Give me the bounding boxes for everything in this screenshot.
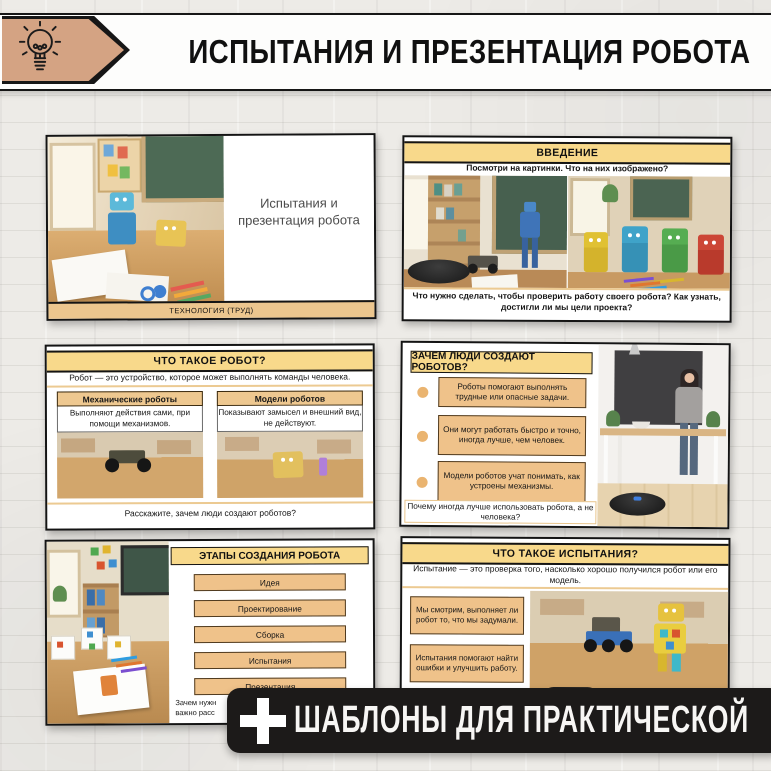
photo-robot-buggy bbox=[57, 432, 203, 499]
slide1-classroom-photo bbox=[48, 136, 225, 306]
cube-robot bbox=[273, 451, 304, 478]
bullet-dot bbox=[417, 431, 428, 442]
robot-vacuum bbox=[408, 259, 470, 283]
ribbon-label: ШАБЛОНЫ ДЛЯ ПРАКТИЧЕСКОЙ bbox=[294, 699, 749, 742]
slide-what-is-robot: ЧТО ТАКОЕ РОБОТ? Робот — это устройство,… bbox=[45, 343, 376, 530]
robot-humanoid-legs bbox=[522, 238, 528, 268]
table-legs bbox=[604, 435, 608, 483]
robot-yellow-head bbox=[658, 603, 684, 621]
templates-ribbon: ШАБЛОНЫ ДЛЯ ПРАКТИЧЕСКОЙ bbox=[227, 688, 771, 753]
column-header-mechanical: Механические роботы bbox=[57, 391, 203, 407]
window bbox=[50, 143, 96, 231]
slide-title-card: Испытания и презентация робота ТЕХНОЛОГИ… bbox=[46, 133, 377, 321]
chalkboard bbox=[121, 545, 170, 595]
slide-why-robots: ЗАЧЕМ ЛЮДИ СОЗДАЮТ РОБОТОВ? Роботы помог… bbox=[399, 341, 730, 530]
robot-humanoid-head bbox=[524, 202, 536, 212]
photo-robots-left bbox=[404, 175, 567, 288]
cube-stickers bbox=[57, 642, 63, 648]
notebook bbox=[471, 274, 518, 288]
step-box-idea: Идея bbox=[194, 573, 346, 591]
window bbox=[47, 550, 81, 618]
robot-yellow-body bbox=[654, 623, 686, 653]
presentation-title: Испытания и презентация робота bbox=[228, 195, 370, 230]
step-box-assembly: Сборка bbox=[194, 625, 346, 643]
question-box: Почему иногда лучше использовать робота,… bbox=[404, 500, 596, 525]
background-desks bbox=[540, 599, 584, 615]
slide-header: ЭТАПЫ СОЗДАНИЯ РОБОТА bbox=[171, 546, 369, 565]
robot-blue-body bbox=[108, 212, 136, 244]
definition-text: Робот — это устройство, которое может вы… bbox=[47, 371, 373, 382]
question-text: Что нужно сделать, чтобы проверить работ… bbox=[412, 290, 722, 313]
plant bbox=[606, 410, 620, 426]
slide-intro: ВВЕДЕНИЕ Посмотри на картинки. Что на ни… bbox=[402, 135, 733, 322]
books bbox=[434, 183, 442, 195]
bullet-dot bbox=[417, 387, 428, 398]
robot-body-panels bbox=[660, 629, 668, 637]
robot-blue bbox=[622, 226, 648, 272]
slide-header: ЧТО ТАКОЕ РОБОТ? bbox=[47, 349, 373, 372]
question-partial-text: Зачем нужн важно расс bbox=[175, 698, 216, 718]
test-box-2: Испытания помогают найти ошибки и улучши… bbox=[410, 644, 524, 683]
robot-yellow bbox=[584, 232, 608, 272]
robot-eyes bbox=[164, 226, 168, 230]
title-panel: Испытания и презентация робота bbox=[224, 135, 375, 304]
robot-eyes bbox=[589, 238, 593, 242]
question-line-2: важно расс bbox=[175, 708, 216, 718]
glue-stick bbox=[319, 458, 327, 476]
photo-kitchen bbox=[597, 344, 728, 527]
lightbulb-icon bbox=[16, 21, 64, 79]
bullet-box-1: Роботы помогают выполнять трудные или оп… bbox=[438, 377, 586, 408]
subject-footer: ТЕХНОЛОГИЯ (ТРУД) bbox=[48, 300, 374, 319]
robot-sketch bbox=[100, 675, 118, 697]
robot-eyes bbox=[664, 609, 668, 613]
test-box-1: Мы смотрим, выполняет ли робот то, что м… bbox=[410, 596, 524, 635]
robot-car-wheels bbox=[584, 639, 597, 652]
photo-workshop bbox=[47, 541, 170, 724]
table-top bbox=[600, 428, 726, 436]
chalkboard bbox=[142, 136, 225, 202]
robot-green bbox=[662, 228, 688, 272]
robot-eyes bbox=[628, 233, 632, 237]
bullet-box-3: Модели роботов учат понимать, как устрое… bbox=[437, 461, 585, 502]
chalkboard bbox=[630, 176, 692, 220]
robot-eyes bbox=[115, 197, 119, 201]
page-title: ИСПЫТАНИЯ И ПРЕЗЕНТАЦИЯ РОБОТА bbox=[188, 33, 716, 71]
folders bbox=[87, 590, 95, 606]
fruit-bowl bbox=[632, 422, 650, 429]
bullet-dot bbox=[417, 477, 428, 488]
woman-face bbox=[684, 373, 694, 383]
robot-yellow-legs bbox=[658, 653, 667, 671]
divider bbox=[47, 501, 373, 504]
slide-header: ЗАЧЕМ ЛЮДИ СОЗДАЮТ РОБОТОВ? bbox=[410, 351, 592, 374]
column-text-models: Показывают замысел и внешний вид, не дей… bbox=[217, 405, 363, 432]
question-line-1: Зачем нужн bbox=[175, 698, 216, 708]
buggy-wheels bbox=[105, 458, 119, 472]
background-desks bbox=[61, 438, 95, 452]
step-box-design: Проектирование bbox=[194, 599, 346, 617]
robot-blue-head bbox=[110, 192, 134, 210]
slide-header: ЧТО ТАКОЕ ИСПЫТАНИЯ? bbox=[402, 542, 728, 566]
photo-robot-model bbox=[217, 431, 363, 498]
robot-yellow bbox=[155, 220, 186, 247]
divider bbox=[402, 586, 728, 590]
definition-text: Испытание — это проверка того, насколько… bbox=[408, 563, 722, 586]
robot-humanoid bbox=[520, 212, 540, 238]
slide-header: ВВЕДЕНИЕ bbox=[404, 141, 730, 164]
bullet-box-2: Они могут работать быстро и точно, иногд… bbox=[438, 415, 586, 456]
step-box-testing: Испытания bbox=[194, 651, 346, 669]
column-header-models: Модели роботов bbox=[217, 390, 363, 406]
plus-icon bbox=[240, 698, 286, 744]
corkboard-papers bbox=[104, 145, 114, 157]
column-text-mechanical: Выполняют действия сами, при помощи меха… bbox=[57, 406, 203, 433]
paper-sheet bbox=[106, 272, 170, 302]
robot-eyes bbox=[704, 241, 708, 245]
photo-robots-right bbox=[567, 176, 731, 289]
paper-cube bbox=[81, 627, 103, 649]
woman-sweater bbox=[675, 387, 702, 423]
prompt-text: Посмотри на картинки. Что на них изображ… bbox=[404, 162, 730, 173]
robot-eyes bbox=[668, 235, 672, 239]
divider bbox=[47, 384, 373, 387]
wall-shapes bbox=[91, 547, 99, 555]
vacuum-light bbox=[633, 497, 641, 501]
robot-red bbox=[698, 235, 724, 275]
plant bbox=[602, 184, 618, 202]
robot-eyes bbox=[281, 458, 285, 462]
question-text: Расскажите, зачем люди создают роботов? bbox=[47, 507, 373, 518]
plant bbox=[53, 586, 67, 602]
background-desks bbox=[225, 437, 259, 451]
